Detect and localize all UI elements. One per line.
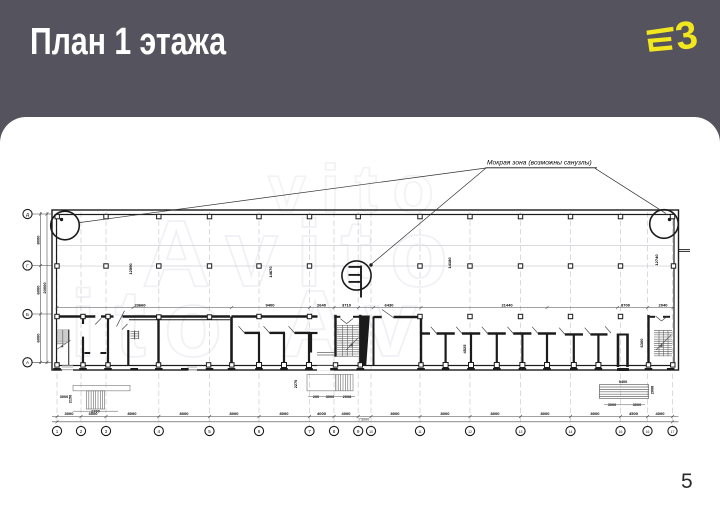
- svg-text:2270: 2270: [294, 380, 298, 388]
- svg-text:8000: 8000: [391, 411, 401, 416]
- svg-text:4000: 4000: [342, 411, 352, 416]
- svg-text:2008: 2008: [343, 395, 351, 399]
- svg-text:Б: Б: [26, 312, 29, 317]
- svg-text:4500: 4500: [629, 411, 639, 416]
- svg-text:8000: 8000: [180, 411, 190, 416]
- svg-text:8000: 8000: [441, 411, 451, 416]
- svg-text:8000: 8000: [591, 411, 601, 416]
- svg-text:2008: 2008: [651, 386, 655, 394]
- svg-text:8000: 8000: [541, 411, 551, 416]
- svg-text:Мокрая зона (возможны санузлы): Мокрая зона (возможны санузлы): [487, 160, 592, 167]
- svg-text:13: 13: [519, 430, 523, 434]
- svg-text:10: 10: [369, 430, 373, 434]
- svg-text:12590: 12590: [128, 263, 133, 275]
- svg-text:12740: 12740: [654, 254, 659, 266]
- svg-text:21440: 21440: [501, 302, 513, 307]
- svg-text:2640: 2640: [317, 302, 327, 307]
- svg-text:6000: 6000: [36, 333, 41, 343]
- svg-text:73000: 73000: [359, 418, 370, 422]
- svg-text:200: 200: [313, 395, 319, 399]
- svg-text:15: 15: [619, 430, 623, 434]
- svg-text:6: 6: [258, 429, 261, 434]
- svg-text:12: 12: [468, 430, 472, 434]
- svg-text:8700: 8700: [621, 302, 631, 307]
- svg-text:1: 1: [56, 429, 59, 434]
- svg-text:4000: 4000: [317, 411, 327, 416]
- svg-text:8000: 8000: [491, 411, 501, 416]
- svg-text:17: 17: [671, 430, 675, 434]
- svg-text:3710: 3710: [342, 302, 352, 307]
- svg-text:8000: 8000: [36, 235, 41, 245]
- svg-text:6430: 6430: [385, 302, 395, 307]
- svg-text:2040: 2040: [659, 302, 669, 307]
- svg-text:3000: 3000: [65, 411, 75, 416]
- svg-text:3000: 3000: [60, 395, 68, 399]
- svg-text:4: 4: [158, 429, 161, 434]
- svg-text:11: 11: [418, 430, 422, 434]
- svg-text:8: 8: [333, 429, 336, 434]
- svg-text:4525: 4525: [462, 344, 467, 354]
- svg-text:20000: 20000: [42, 282, 47, 294]
- svg-text:7: 7: [308, 429, 311, 434]
- svg-text:14670: 14670: [268, 266, 273, 278]
- svg-text:2700: 2700: [91, 410, 99, 414]
- svg-text:2: 2: [80, 429, 83, 434]
- svg-text:9: 9: [357, 429, 360, 434]
- svg-text:3000: 3000: [326, 395, 334, 399]
- svg-text:ito Av: ito Av: [70, 271, 435, 377]
- svg-text:23660: 23660: [134, 302, 146, 307]
- svg-text:14: 14: [569, 430, 573, 434]
- svg-text:4000: 4000: [656, 411, 666, 416]
- svg-text:8000: 8000: [280, 411, 290, 416]
- svg-text:2150: 2150: [69, 395, 73, 403]
- svg-text:8000: 8000: [230, 411, 240, 416]
- svg-text:5: 5: [208, 429, 211, 434]
- svg-text:14180: 14180: [447, 257, 452, 269]
- svg-text:8000: 8000: [128, 411, 138, 416]
- svg-text:9400: 9400: [266, 302, 276, 307]
- svg-text:6300: 6300: [639, 338, 644, 348]
- svg-text:3: 3: [105, 429, 108, 434]
- svg-text:16: 16: [646, 430, 650, 434]
- svg-text:6000: 6000: [36, 285, 41, 295]
- svg-text:9400: 9400: [619, 380, 627, 384]
